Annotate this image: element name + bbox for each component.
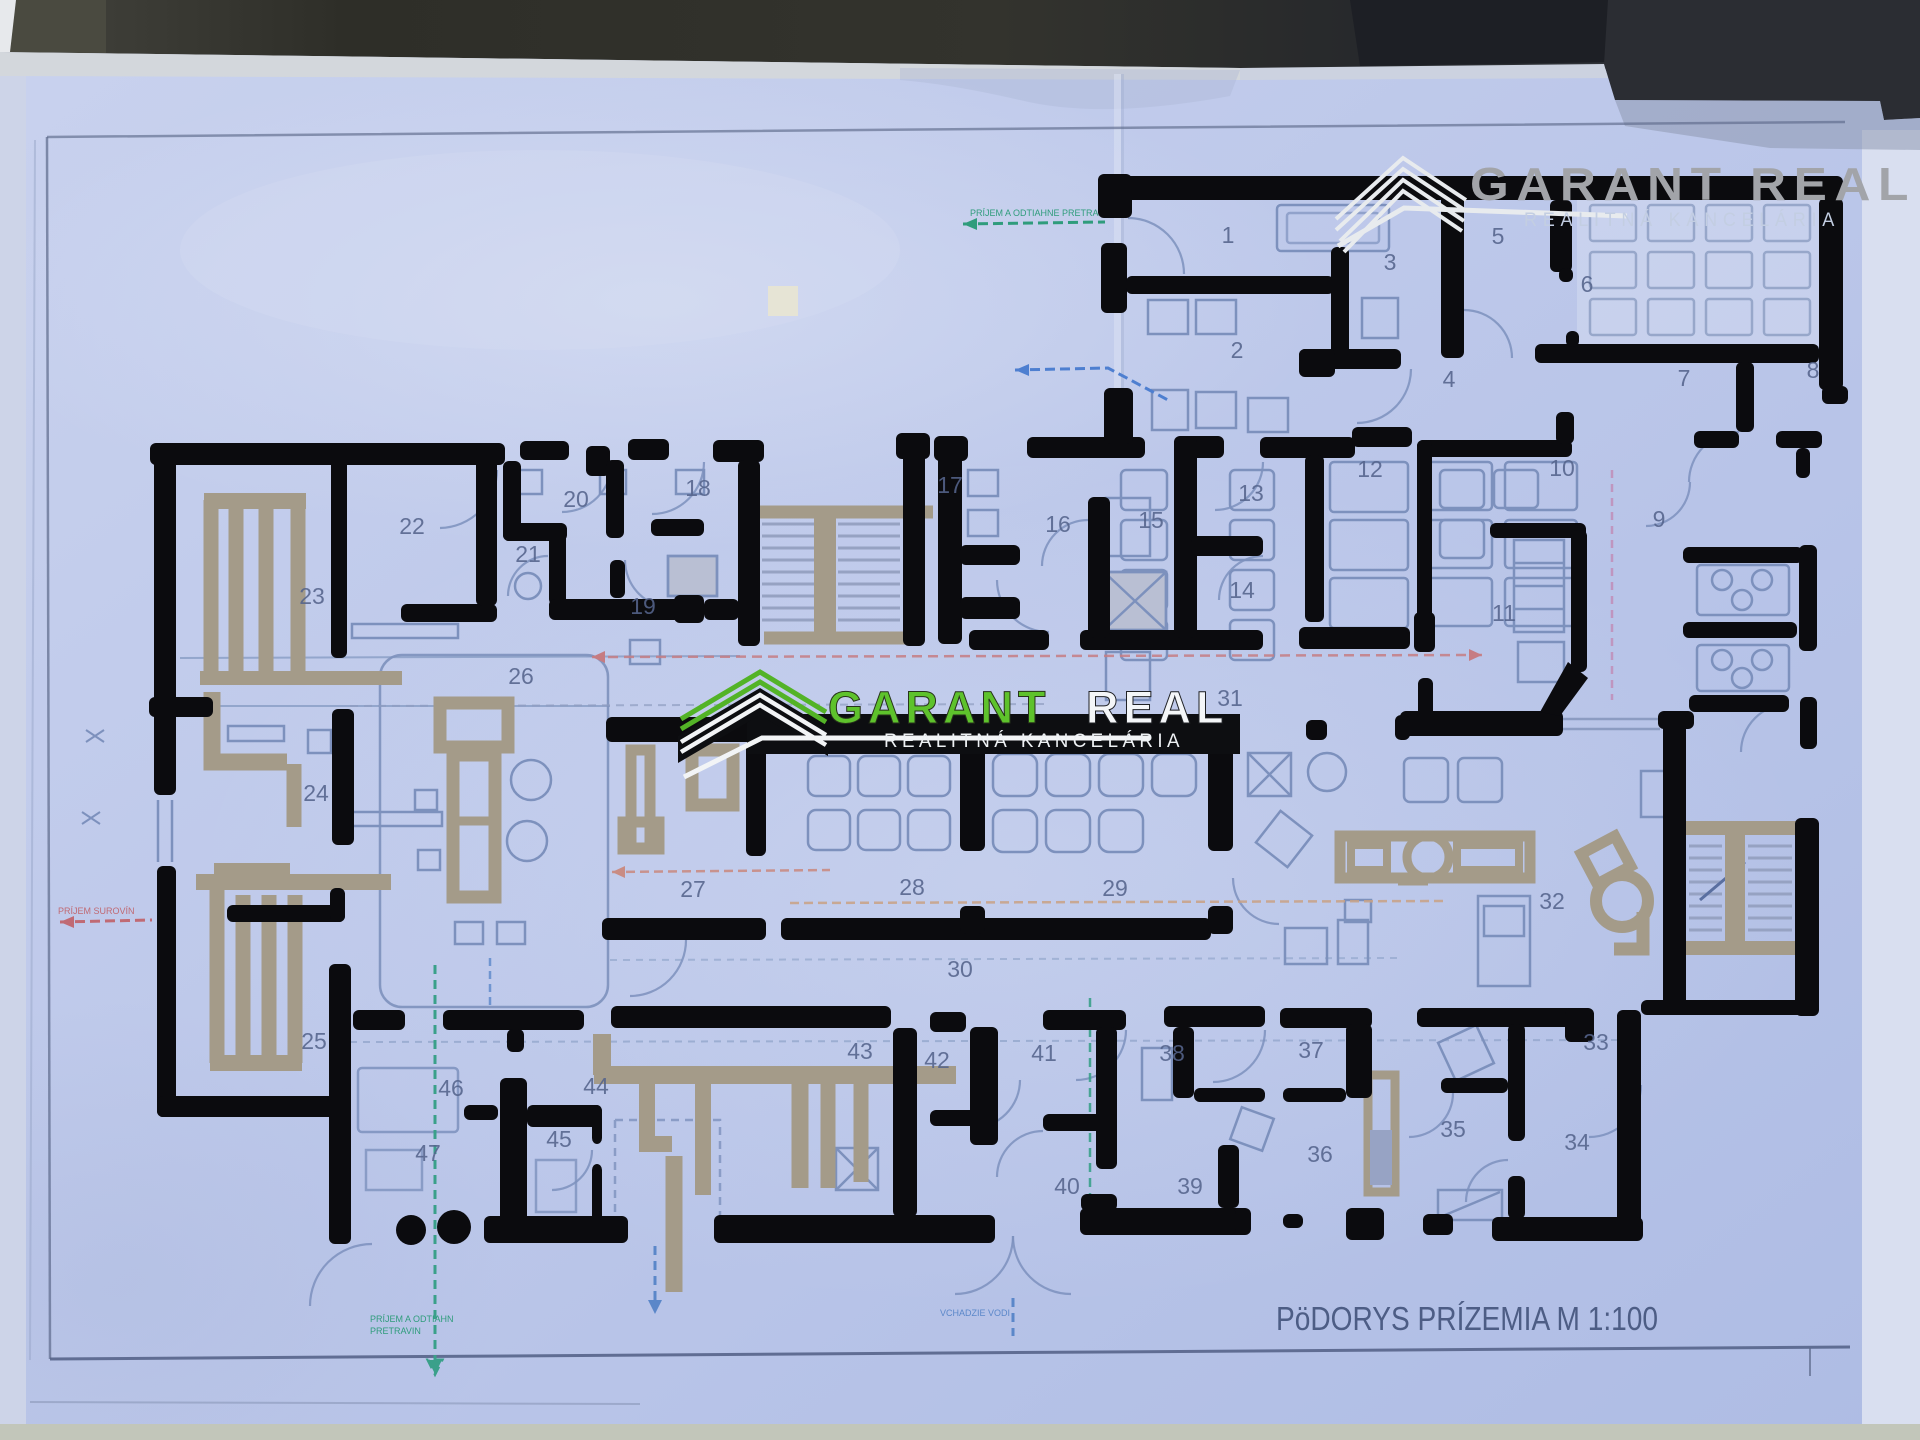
svg-text:32: 32 bbox=[1539, 888, 1565, 914]
svg-text:12: 12 bbox=[1357, 456, 1383, 482]
svg-text:8: 8 bbox=[1807, 357, 1820, 383]
svg-text:19: 19 bbox=[630, 593, 656, 619]
svg-text:VCHADZIE VODI: VCHADZIE VODI bbox=[940, 1308, 1010, 1318]
svg-text:44: 44 bbox=[583, 1073, 609, 1099]
svg-text:PRÍJEM SUROVÍN: PRÍJEM SUROVÍN bbox=[58, 906, 135, 916]
svg-text:2: 2 bbox=[1231, 337, 1244, 363]
svg-text:46: 46 bbox=[438, 1075, 464, 1101]
svg-text:PRÍJEM A ODTIAHN: PRÍJEM A ODTIAHN bbox=[370, 1314, 454, 1324]
svg-text:3: 3 bbox=[1384, 249, 1397, 275]
svg-text:37: 37 bbox=[1298, 1037, 1324, 1063]
svg-text:GARANT REAL: GARANT REAL bbox=[1470, 158, 1916, 210]
svg-text:GARANT: GARANT bbox=[828, 682, 1050, 733]
svg-text:1: 1 bbox=[1222, 222, 1235, 248]
svg-text:6: 6 bbox=[1581, 271, 1594, 297]
svg-text:35: 35 bbox=[1440, 1116, 1466, 1142]
svg-text:26: 26 bbox=[508, 663, 534, 689]
svg-text:21: 21 bbox=[515, 541, 541, 567]
svg-text:40: 40 bbox=[1054, 1173, 1080, 1199]
svg-text:27: 27 bbox=[680, 876, 706, 902]
svg-text:33: 33 bbox=[1583, 1029, 1609, 1055]
svg-text:4: 4 bbox=[1443, 366, 1456, 392]
svg-text:22: 22 bbox=[399, 513, 425, 539]
svg-text:15: 15 bbox=[1138, 507, 1164, 533]
svg-text:11: 11 bbox=[1492, 600, 1516, 626]
svg-text:39: 39 bbox=[1177, 1173, 1203, 1199]
svg-text:47: 47 bbox=[415, 1140, 441, 1166]
svg-text:PRETRAVIN: PRETRAVIN bbox=[370, 1326, 421, 1336]
svg-text:REALITNÁ KANCELÁRIA: REALITNÁ KANCELÁRIA bbox=[1524, 210, 1840, 231]
svg-text:28: 28 bbox=[899, 874, 925, 900]
svg-text:16: 16 bbox=[1045, 511, 1071, 537]
svg-text:42: 42 bbox=[924, 1047, 950, 1073]
svg-text:5: 5 bbox=[1492, 223, 1505, 249]
svg-text:30: 30 bbox=[947, 956, 973, 982]
svg-text:20: 20 bbox=[563, 486, 589, 512]
svg-text:36: 36 bbox=[1307, 1141, 1333, 1167]
svg-text:13: 13 bbox=[1238, 480, 1264, 506]
svg-text:10: 10 bbox=[1549, 455, 1575, 481]
svg-text:17: 17 bbox=[937, 472, 963, 498]
svg-text:PöDORYS PRÍZEMIA M 1:100: PöDORYS PRÍZEMIA M 1:100 bbox=[1276, 1300, 1658, 1337]
svg-text:41: 41 bbox=[1031, 1040, 1057, 1066]
svg-text:9: 9 bbox=[1653, 506, 1666, 532]
svg-text:34: 34 bbox=[1564, 1129, 1590, 1155]
svg-text:25: 25 bbox=[301, 1028, 327, 1054]
svg-text:REALITNÁ KANCELÁRIA: REALITNÁ KANCELÁRIA bbox=[884, 731, 1184, 752]
svg-text:43: 43 bbox=[847, 1038, 873, 1064]
svg-text:24: 24 bbox=[303, 780, 329, 806]
svg-text:29: 29 bbox=[1102, 875, 1128, 901]
svg-text:23: 23 bbox=[299, 583, 325, 609]
svg-text:18: 18 bbox=[685, 475, 711, 501]
svg-text:REAL: REAL bbox=[1086, 682, 1229, 733]
svg-text:PRÍJEM A ODTIAHNE PRETRAVIN: PRÍJEM A ODTIAHNE PRETRAVIN bbox=[970, 208, 1113, 218]
svg-text:7: 7 bbox=[1678, 365, 1691, 391]
svg-text:38: 38 bbox=[1159, 1040, 1185, 1066]
svg-text:45: 45 bbox=[546, 1126, 572, 1152]
svg-text:14: 14 bbox=[1229, 577, 1255, 603]
